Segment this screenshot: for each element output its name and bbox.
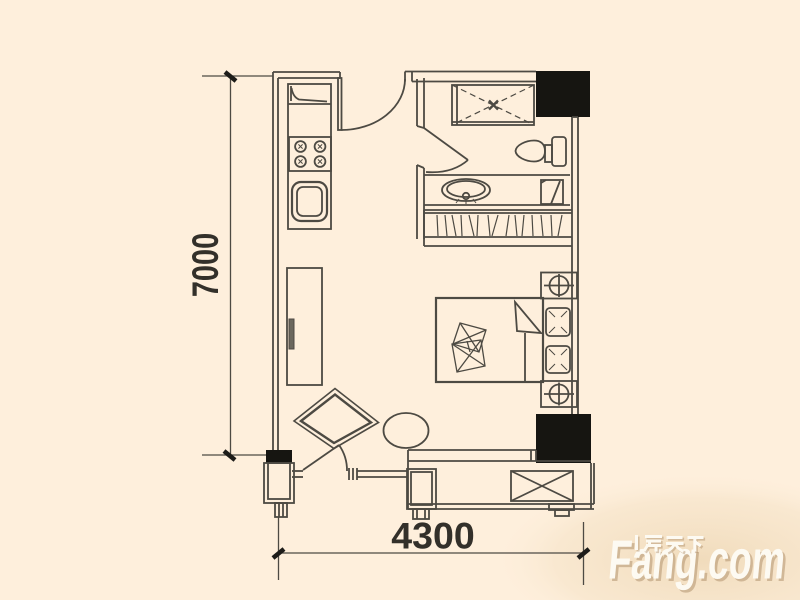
svg-text:7000: 7000 bbox=[186, 233, 227, 297]
svg-text:4300: 4300 bbox=[391, 515, 474, 557]
